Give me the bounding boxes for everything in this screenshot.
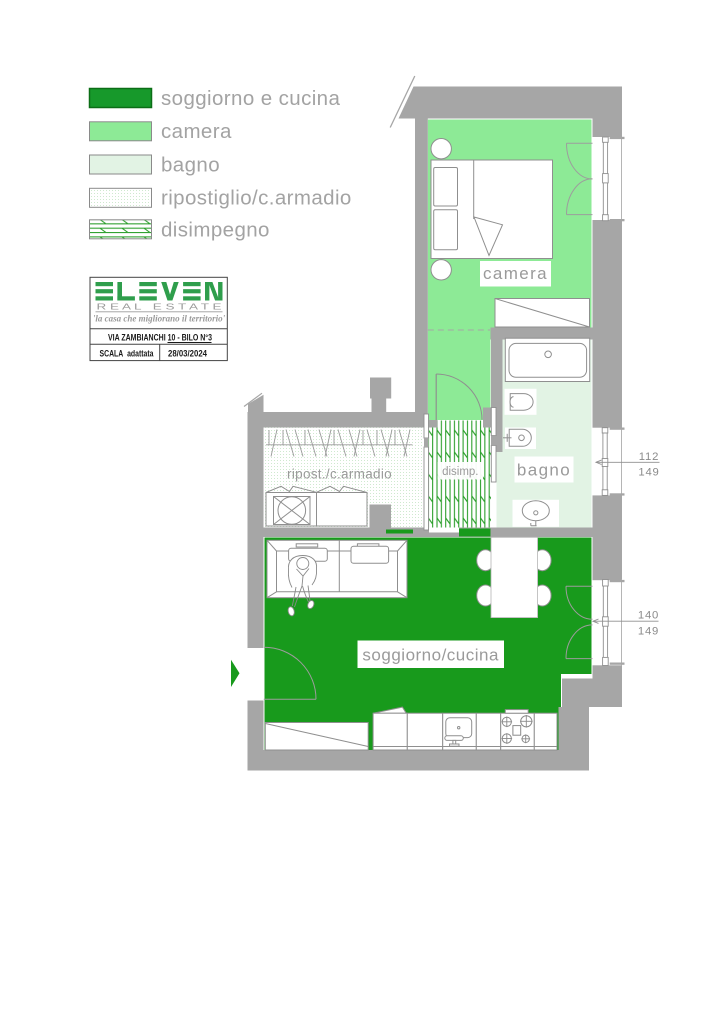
svg-text:camera: camera	[161, 120, 232, 143]
svg-text:ripost./c.armadio: ripost./c.armadio	[287, 467, 392, 482]
svg-text:28/03/2024: 28/03/2024	[168, 348, 208, 358]
svg-text:149: 149	[638, 466, 659, 478]
svg-text:bagno: bagno	[161, 154, 220, 177]
svg-text:bagno: bagno	[517, 461, 571, 480]
svg-text:disimpegno: disimpegno	[161, 219, 270, 242]
svg-text:R E A L E S T A T E: R E A L E S T A T E	[97, 303, 222, 312]
svg-text:SCALA adattata: SCALA adattata	[100, 348, 155, 358]
svg-text:soggiorno/cucina: soggiorno/cucina	[362, 646, 499, 665]
svg-text:ripostiglio/c.armadio: ripostiglio/c.armadio	[161, 187, 352, 210]
svg-text:140: 140	[638, 609, 659, 621]
svg-text:149: 149	[638, 626, 659, 638]
svg-text:camera: camera	[483, 264, 548, 283]
svg-text:soggiorno e cucina: soggiorno e cucina	[161, 87, 340, 110]
svg-text:112: 112	[639, 451, 659, 463]
svg-text:'la casa che migliorano il ter: 'la casa che migliorano il territorio'	[93, 314, 226, 324]
svg-text:VIA ZAMBIANCHI 10 - BILO N°3: VIA ZAMBIANCHI 10 - BILO N°3	[108, 332, 212, 342]
svg-text:disimp.: disimp.	[442, 466, 478, 478]
